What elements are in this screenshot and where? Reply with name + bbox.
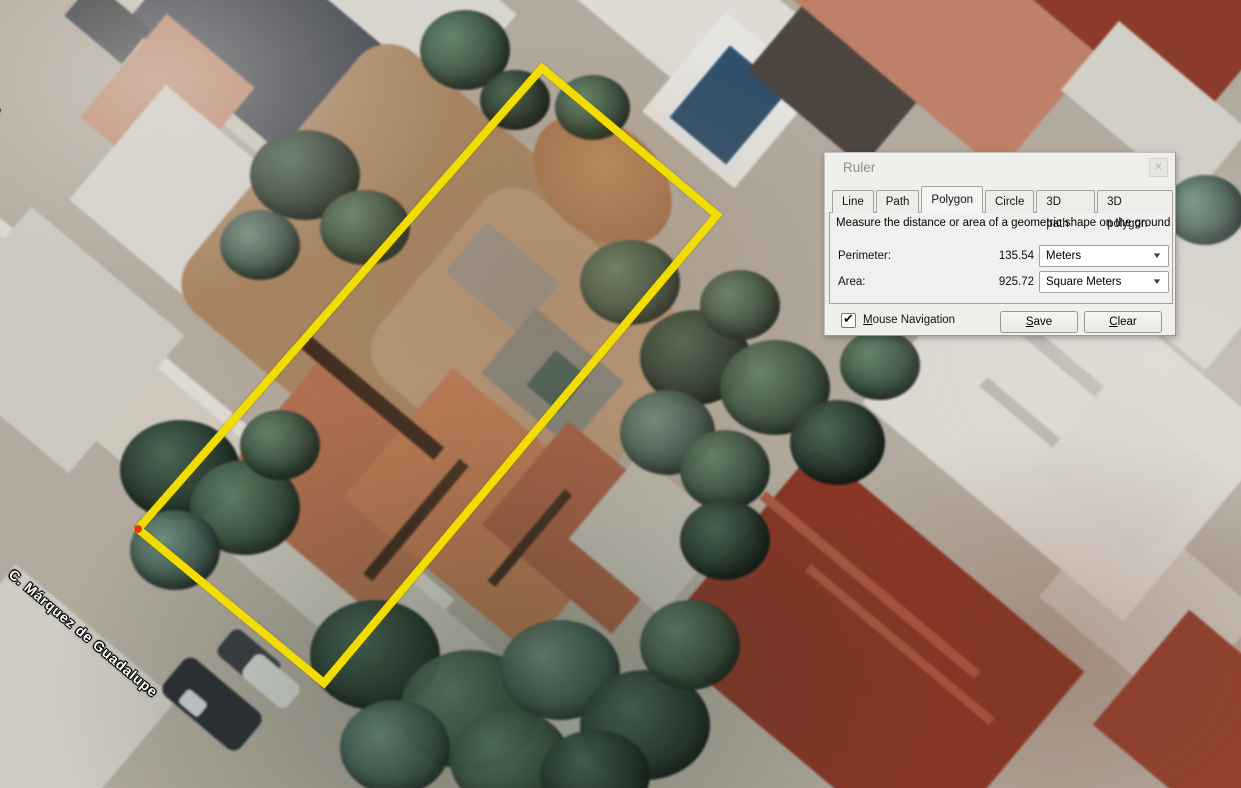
save-button[interactable]: Save bbox=[1000, 311, 1078, 333]
area-label: Area: bbox=[838, 271, 866, 293]
area-row: Area: 925.72 Square Meters ▼ bbox=[830, 271, 1172, 293]
tab-path[interactable]: Path bbox=[876, 190, 920, 213]
tab-line[interactable]: Line bbox=[832, 190, 874, 213]
mouse-navigation-label: Mouse Navigation bbox=[863, 314, 955, 326]
ruler-dialog: Ruler ✕ Line Path Polygon Circle 3D path… bbox=[824, 152, 1176, 336]
tab-3d-path[interactable]: 3D path bbox=[1036, 190, 1095, 213]
tab-3d-polygon[interactable]: 3D polygon bbox=[1097, 190, 1173, 213]
perimeter-label: Perimeter: bbox=[838, 245, 891, 267]
chevron-down-icon: ▼ bbox=[1152, 272, 1163, 292]
satellite-map[interactable]: C. Márquez de Guadalupe ca bbox=[0, 0, 1241, 788]
google-earth-viewport: C. Márquez de Guadalupe ca Ruler ✕ Line … bbox=[0, 0, 1241, 788]
area-value: 925.72 bbox=[999, 271, 1034, 293]
perimeter-value: 135.54 bbox=[999, 245, 1034, 267]
dialog-title: Ruler bbox=[843, 160, 875, 175]
area-unit-dropdown[interactable]: Square Meters ▼ bbox=[1039, 271, 1169, 293]
tab-circle[interactable]: Circle bbox=[985, 190, 1034, 213]
mouse-navigation-checkbox[interactable]: ✔ bbox=[841, 313, 856, 328]
perimeter-unit-value: Meters bbox=[1046, 250, 1081, 262]
clear-button[interactable]: Clear bbox=[1084, 311, 1162, 333]
measurement-polygon[interactable] bbox=[138, 68, 717, 683]
checkmark-icon: ✔ bbox=[843, 311, 854, 327]
polygon-vertex-marker[interactable] bbox=[134, 525, 142, 533]
perimeter-unit-dropdown[interactable]: Meters ▼ bbox=[1039, 245, 1169, 267]
tab-strip: Line Path Polygon Circle 3D path 3D poly… bbox=[832, 186, 1175, 213]
tab-polygon[interactable]: Polygon bbox=[921, 186, 983, 213]
close-icon[interactable]: ✕ bbox=[1149, 158, 1168, 177]
chevron-down-icon: ▼ bbox=[1152, 246, 1163, 266]
perimeter-row: Perimeter: 135.54 Meters ▼ bbox=[830, 245, 1172, 267]
area-unit-value: Square Meters bbox=[1046, 276, 1121, 288]
measurement-overlay bbox=[0, 0, 1241, 788]
